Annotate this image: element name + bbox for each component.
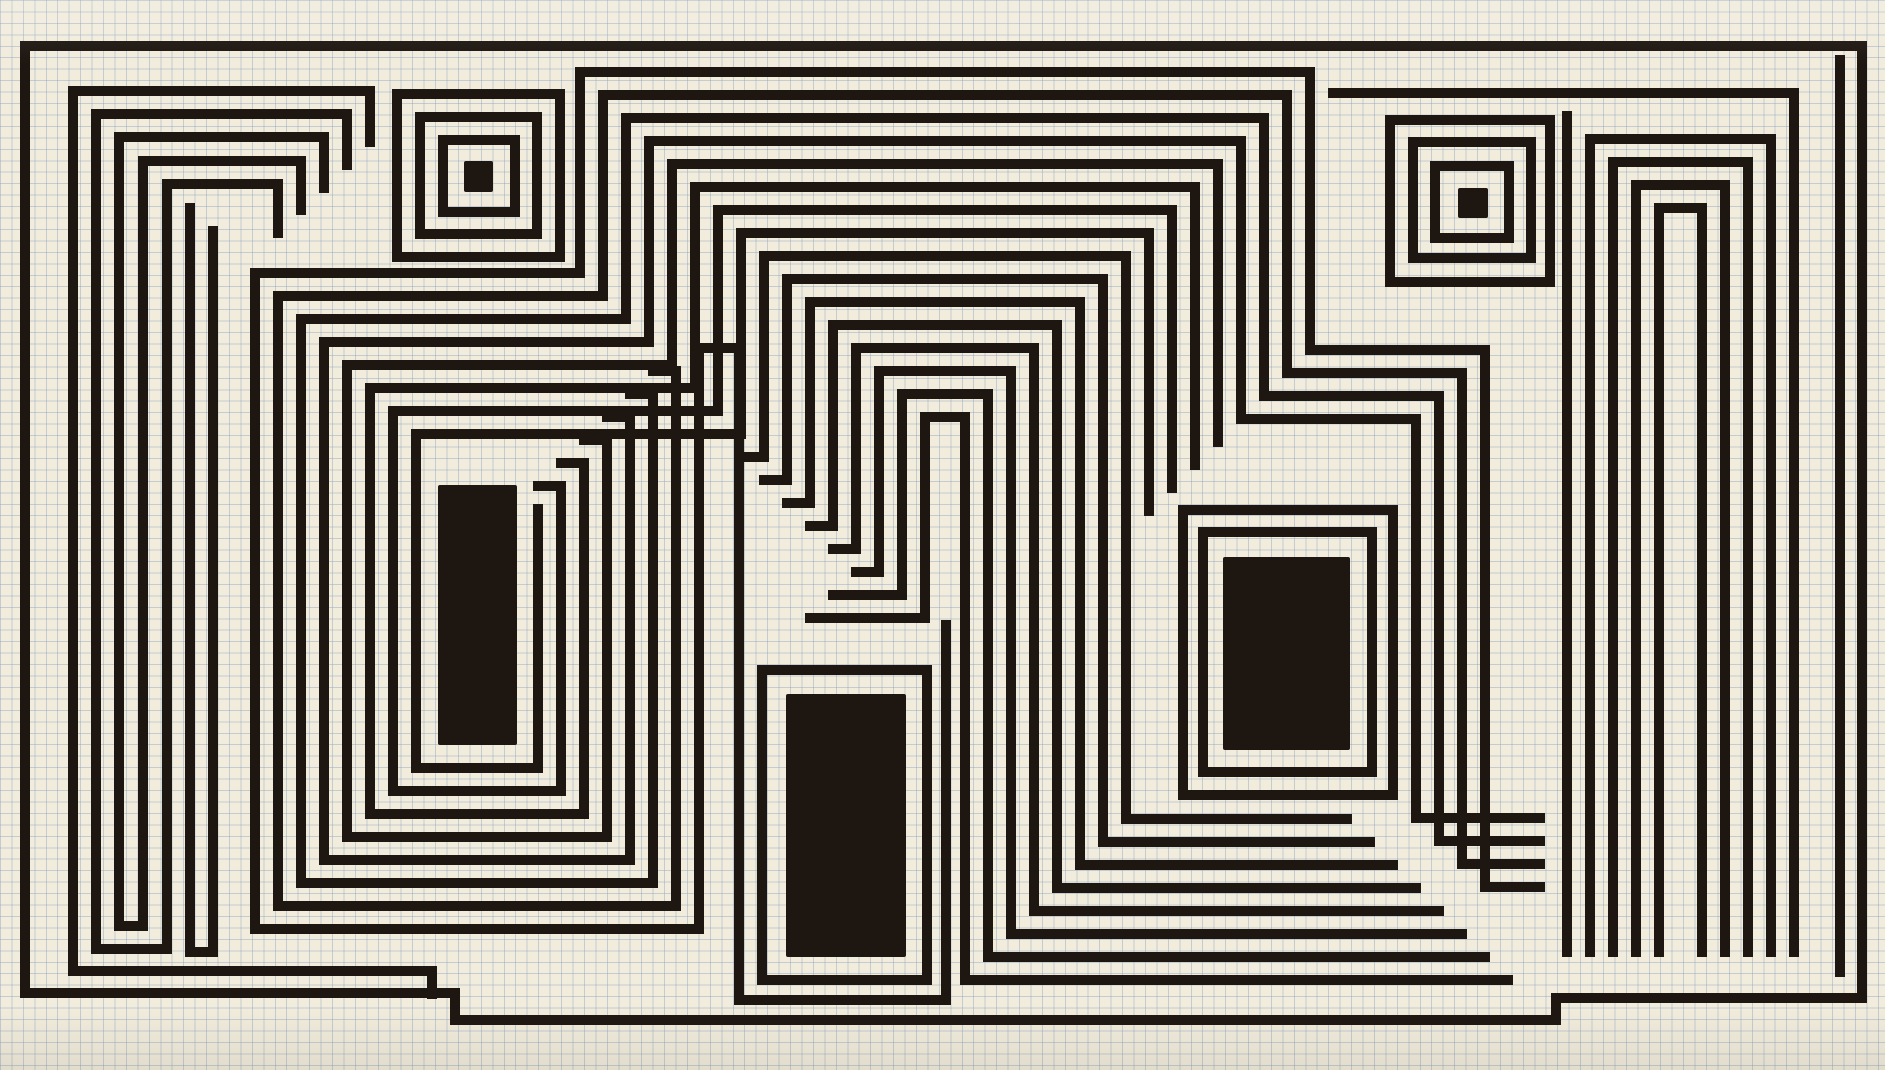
fan-line-2 [96,114,347,949]
labyrinth-ink-drawing [0,0,1885,1070]
left-bullseye-core [464,161,493,192]
right-bullseye-core [1458,188,1488,218]
left-black-rectangle [438,485,517,745]
left-tall-u [190,208,213,952]
right-comb-3 [1636,185,1725,952]
fan-line-3 [119,137,324,926]
center-black-rectangle [786,694,906,957]
artwork-scan [0,0,1885,1070]
right-comb-4 [1659,208,1702,952]
center-hairpin-3 [810,417,1508,980]
right-black-rectangle [1223,557,1350,750]
